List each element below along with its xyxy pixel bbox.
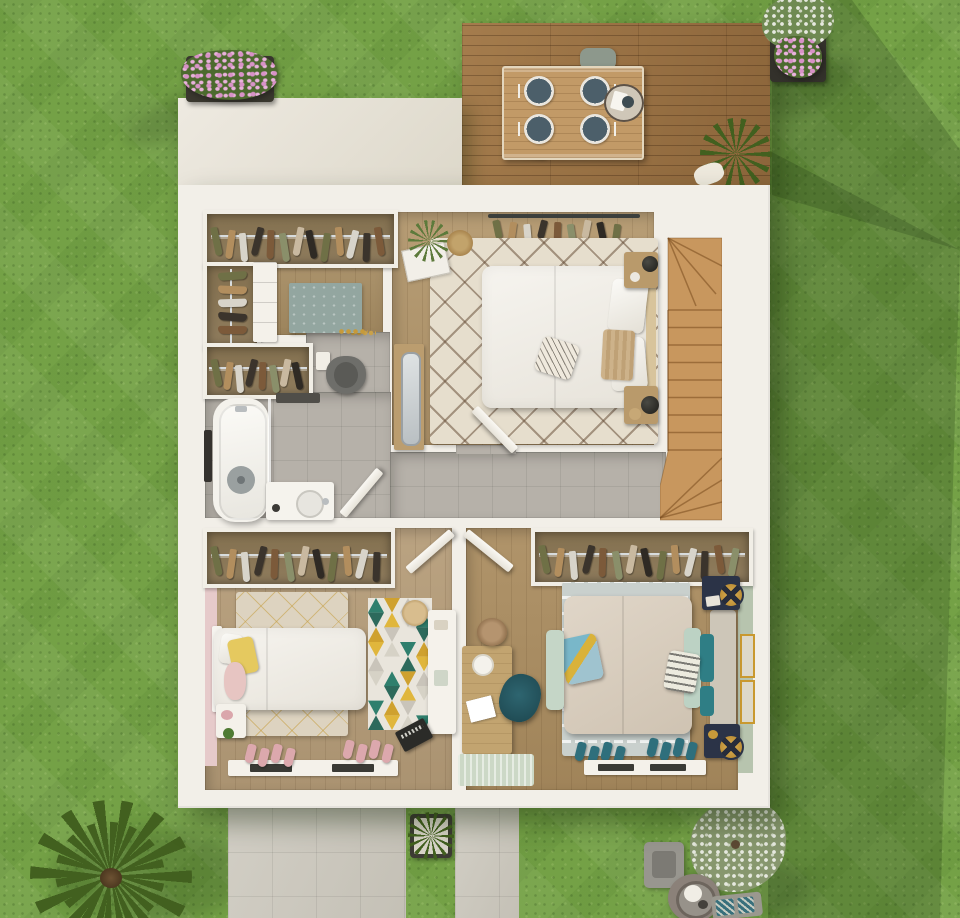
bath-mat (276, 393, 320, 403)
plush-toy (224, 662, 246, 700)
standing-mirror (401, 352, 421, 446)
cutlery (518, 84, 520, 98)
art-frame-gold (740, 634, 755, 678)
sink-faucet (322, 498, 329, 505)
bedroom2-nightstand (702, 576, 740, 610)
hanging-garment (537, 220, 548, 240)
hanging-garment (218, 326, 247, 334)
hanging-garment (250, 227, 264, 257)
cup (622, 96, 634, 108)
pink-deco (221, 710, 233, 720)
terrace-deck (462, 23, 770, 186)
hanging-garment (334, 227, 344, 256)
mini-plant (223, 728, 234, 739)
potted-plant (408, 220, 450, 262)
hanging-garment (342, 545, 352, 576)
slipper (257, 747, 270, 768)
soap-dish (272, 504, 280, 512)
pillow-teal (700, 686, 714, 716)
slipper (244, 743, 257, 764)
cutlery (518, 122, 520, 136)
slipper (355, 743, 368, 764)
duvet-fold (266, 628, 268, 710)
bath-drain (227, 466, 255, 494)
slipper (672, 737, 685, 758)
path-planter-plant (408, 812, 454, 860)
stool (402, 600, 428, 626)
place-setting (580, 114, 610, 144)
master-nightstand (624, 252, 658, 288)
gold-lamp (718, 582, 744, 608)
hanging-garment (241, 552, 251, 583)
dressing-wardrobe-lower (203, 343, 313, 399)
cutlery (614, 122, 616, 136)
hanging-garment (270, 549, 278, 579)
dish (629, 408, 641, 420)
kids-slippers (344, 740, 400, 770)
floor-plan-scene (0, 0, 960, 918)
serving-tray (604, 84, 644, 122)
slipper (574, 741, 587, 762)
art-frame-gold (740, 680, 755, 724)
slipper (283, 747, 296, 768)
hanging-garment (372, 552, 380, 582)
kids-desk (428, 610, 456, 734)
hanging-garment (569, 551, 579, 580)
bench-cushion (715, 898, 735, 916)
toilet-seat (334, 362, 358, 388)
hanging-garment (612, 551, 623, 581)
master-nightstand (624, 386, 658, 424)
hanging-garment (283, 551, 295, 582)
pillow-teal (700, 634, 714, 682)
table-lamp (642, 256, 658, 272)
toilet (326, 356, 366, 394)
knit-throw (601, 329, 636, 381)
hanging-garment (374, 227, 385, 257)
kids-nightstand (216, 704, 246, 738)
garden-table-item (698, 900, 708, 909)
gold-fittings (338, 328, 368, 335)
shelf-frame (598, 764, 634, 771)
hanging-garment (279, 233, 290, 263)
slipper (270, 743, 283, 764)
hanging-garment (218, 299, 247, 308)
slipper (685, 741, 698, 762)
hanging-garment (362, 233, 370, 262)
mirror-plank (394, 344, 424, 450)
corner-pot-blooms (774, 36, 822, 78)
hanging-garment (218, 271, 247, 281)
flat-roof (178, 98, 462, 188)
hanging-garment (626, 545, 638, 575)
hanging-garment (239, 233, 249, 262)
garden-path (455, 808, 519, 918)
hanging-garment (714, 545, 725, 575)
garden-bench (711, 891, 763, 918)
hanging-garment (210, 545, 223, 576)
path-planter (410, 814, 452, 858)
bedroom2-low-shelf (584, 760, 706, 775)
vanity (266, 482, 334, 520)
hanging-garment (244, 359, 258, 388)
hanging-garment (235, 365, 244, 393)
hanging-garment (582, 220, 592, 240)
dressing-wardrobe-top (203, 210, 398, 268)
table-lamp (641, 396, 659, 414)
duvet-fold (622, 596, 624, 734)
hanging-garment (671, 545, 681, 574)
hanging-garment (492, 220, 503, 240)
paper-sheet (466, 695, 497, 723)
shelf-frame (650, 764, 686, 771)
desk-items (434, 670, 448, 686)
cushion-striped (663, 650, 701, 695)
fire-pit-bowl (652, 851, 676, 878)
bathtub (213, 398, 269, 522)
hanging-garment (656, 551, 667, 581)
bench-cushion (737, 896, 755, 914)
drain-dot (237, 476, 245, 484)
vase (472, 654, 494, 676)
dressing-rug (289, 283, 362, 333)
hanging-garment (218, 285, 247, 294)
towel-rail (204, 430, 212, 482)
hanging-garment (599, 548, 607, 577)
hanging-garment (292, 227, 304, 257)
garden-table-pot (684, 885, 702, 902)
driveway (228, 808, 406, 918)
clothes-rail-bar (488, 214, 640, 218)
hanging-garment (259, 362, 267, 390)
dressing-shelf-unit (253, 262, 277, 342)
dish (630, 272, 640, 282)
slipper (342, 739, 355, 760)
slipper (646, 737, 659, 758)
books (705, 595, 720, 607)
landing-floor (390, 452, 666, 518)
hanging-garment (297, 545, 310, 576)
pouf (477, 618, 507, 646)
bed-bench (546, 630, 564, 710)
hanging-garment (267, 230, 275, 259)
mint-mat (458, 754, 534, 786)
slipper (659, 741, 672, 762)
bathtub-basin (219, 404, 267, 520)
hanging-garment (538, 545, 551, 575)
slipper (381, 743, 394, 764)
bath-faucet (235, 406, 247, 412)
palm-trunk (100, 868, 122, 888)
hanging-garment (253, 545, 267, 576)
hanging-garment (581, 545, 595, 575)
sink (296, 490, 324, 518)
slipper (600, 741, 613, 762)
jute-rug (447, 230, 473, 256)
desk-items (434, 620, 448, 630)
staircase (660, 236, 722, 522)
slipper (368, 739, 381, 760)
kids-wardrobe (203, 528, 395, 588)
place-setting (524, 114, 554, 144)
hanging-garment (210, 227, 223, 257)
hanging-garment (327, 551, 338, 582)
gold-lamp (718, 734, 744, 760)
place-setting (524, 76, 554, 106)
hanging-garment (320, 233, 331, 263)
hanging-garment (210, 359, 223, 388)
duvet-fold (554, 266, 556, 408)
hanging-garment (218, 312, 248, 322)
hanging-garment (279, 359, 291, 388)
blossom-trunk (731, 840, 740, 849)
kids-slippers (246, 744, 306, 774)
